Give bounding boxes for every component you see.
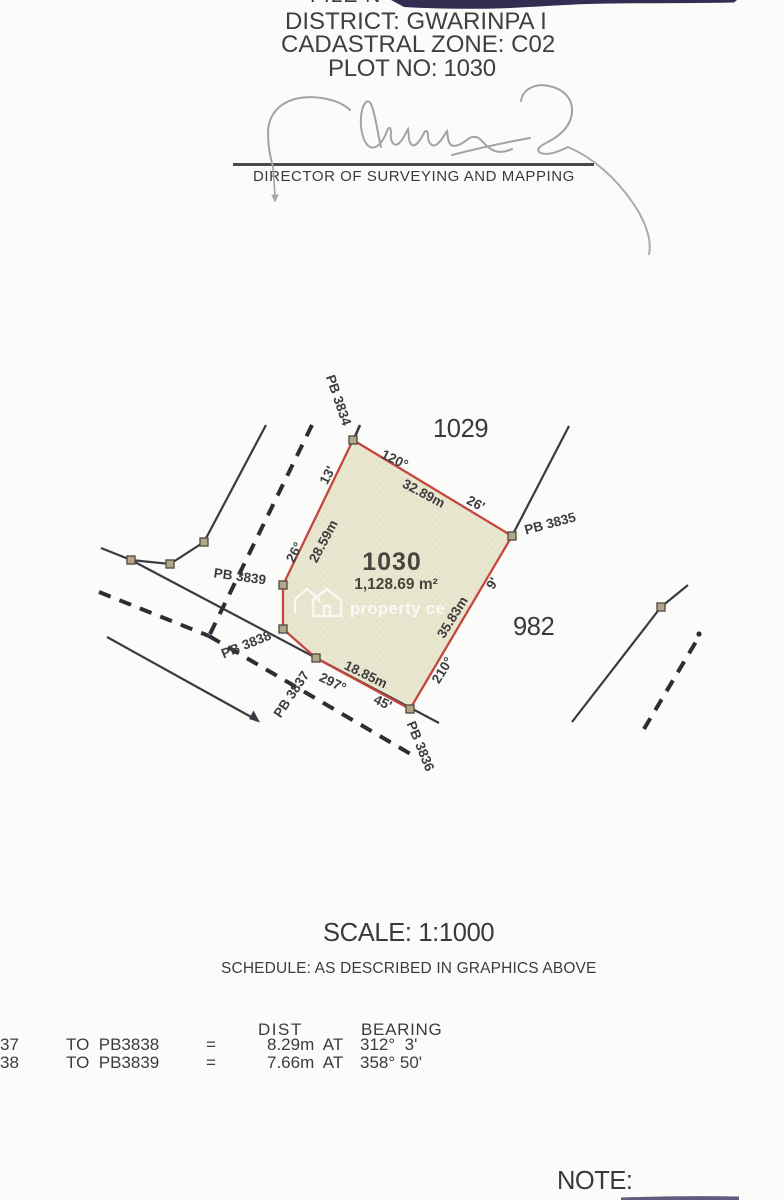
svg-text:982: 982 [513, 613, 554, 641]
svg-text:PB 3838: PB 3838 [219, 627, 274, 661]
svg-text:property ce: property ce [350, 600, 445, 618]
svg-text:1,128.69 m²: 1,128.69 m² [354, 576, 438, 593]
svg-text:PB 3835: PB 3835 [523, 509, 578, 537]
svg-text:1030: 1030 [362, 548, 422, 576]
svg-text:PB 3836: PB 3836 [404, 719, 438, 774]
svg-text:1029: 1029 [433, 415, 488, 443]
svg-text:PB 3839: PB 3839 [213, 565, 267, 587]
svg-text:PB 3834: PB 3834 [323, 373, 354, 428]
